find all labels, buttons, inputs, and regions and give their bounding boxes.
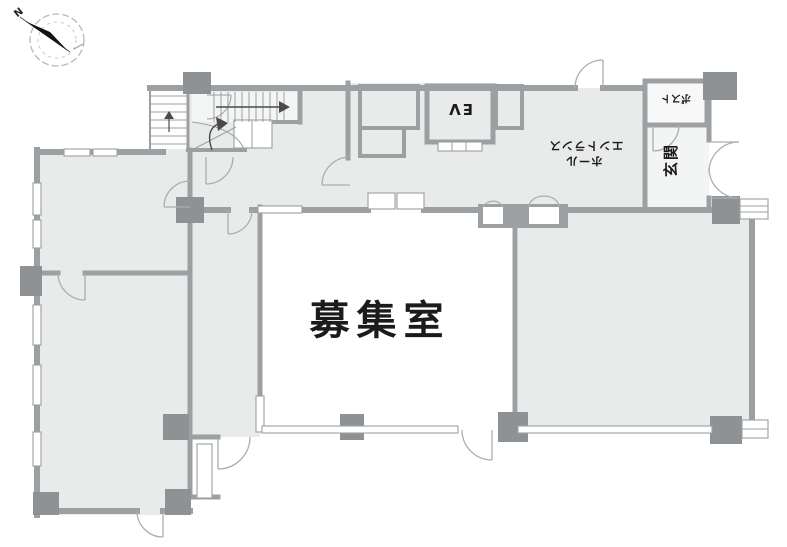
pillar [163,414,189,440]
upper-left-room [37,150,190,277]
pipe-shaft-box [234,120,272,148]
entrance-label: 玄関 [662,143,680,177]
pillar [176,197,204,223]
vacant-room-label: 募集室 [309,298,451,344]
north-compass-icon: N [12,6,84,66]
door-arc [218,437,250,469]
window [33,305,41,345]
window [258,206,302,213]
lower-left-room [37,270,190,515]
window-band [262,426,458,433]
pillar [165,489,191,515]
door-arc [709,142,739,172]
floor-plan-drawing: N 募集室 EV エントランス ホール ポスト 玄関 [0,0,787,547]
pillar [183,72,211,94]
pillar [712,196,740,224]
pillar [710,416,742,444]
door-arc [462,430,492,460]
middle-strip-room [188,207,260,437]
window [33,183,41,215]
pillar [20,266,42,296]
window-band [197,444,212,498]
compass-north-label: N [12,6,25,20]
wall-shaft-box [368,193,395,209]
mailbox-label: ポスト [661,92,691,105]
pillar [703,72,737,100]
window [64,149,90,156]
wall-niches [478,204,568,228]
window [93,149,117,156]
elevator-door-sill [438,142,482,151]
window [33,220,41,248]
entrance-hall-label-line1: エントランス [549,139,624,153]
pillar [33,492,59,515]
window [33,432,41,466]
door-arc [575,60,603,88]
louver-symbol [740,199,768,219]
window [33,365,41,405]
elevator-label: EV [447,100,473,118]
right-room [518,207,754,430]
door-arc [709,168,739,198]
wall-shaft-box [397,193,424,209]
entrance-hall-label-line2: ホール [565,154,603,168]
floor-plan-page: N 募集室 EV エントランス ホール ポスト 玄関 [0,0,787,547]
window-band [518,426,712,433]
